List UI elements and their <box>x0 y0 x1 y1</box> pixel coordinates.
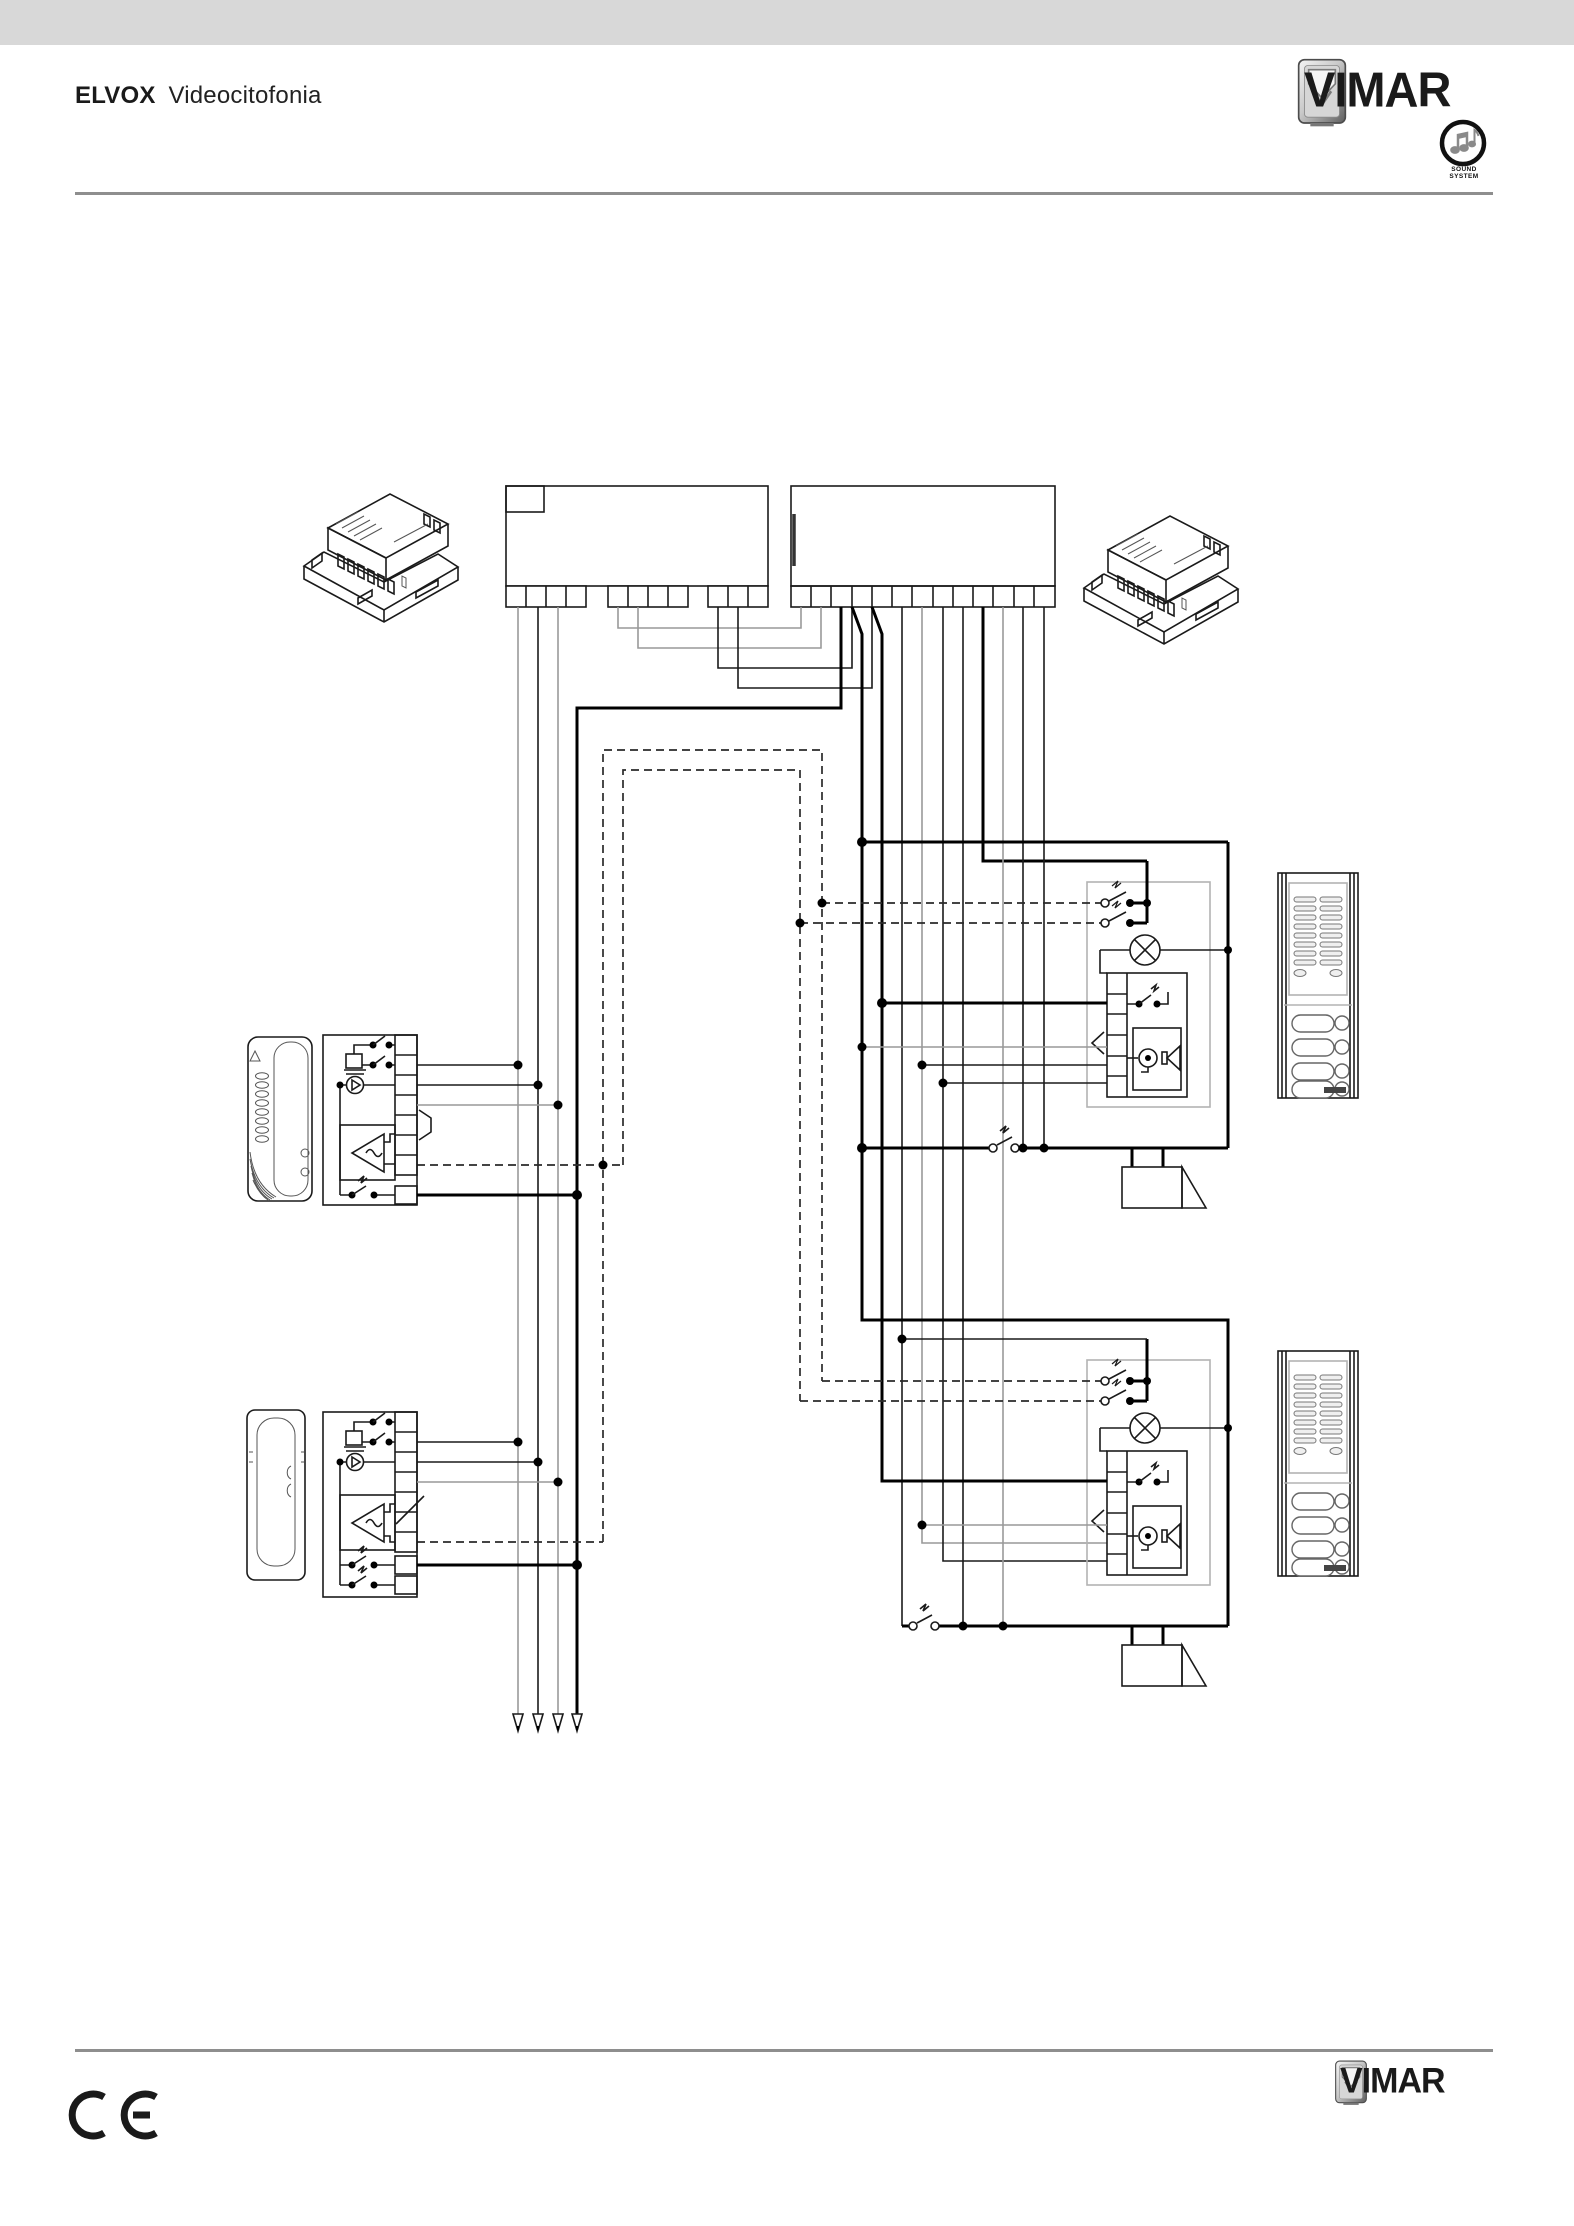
ce-mark-icon <box>72 2094 156 2136</box>
interphone-1-schematic <box>323 1035 431 1205</box>
terminal-unit-left <box>506 486 768 607</box>
entrance-panel-icon <box>1278 873 1358 1098</box>
receiver-icon <box>346 1074 364 1094</box>
interphone-1 <box>248 1035 577 1205</box>
vimar-wordmark: VIMAR <box>1340 2063 1445 2098</box>
door-station-1 <box>800 842 1358 1208</box>
dashed-wires <box>417 750 822 1542</box>
amplifier-icon <box>340 1125 395 1180</box>
handset-icon <box>247 1410 305 1580</box>
footer-rule <box>75 2049 1493 2052</box>
din-power-supply-left-icon <box>304 494 458 622</box>
interphone-2 <box>247 1410 577 1597</box>
buzzer-icon <box>344 1054 366 1070</box>
terminal-unit-right <box>791 486 1055 607</box>
door-station-2 <box>800 1320 1358 1686</box>
riser-arrows <box>513 1714 582 1731</box>
vimar-logo-footer: VIMAR <box>1334 2060 1445 2098</box>
din-power-supply-right-icon <box>1084 516 1238 644</box>
handset-icon <box>248 1037 312 1201</box>
interphone-2-schematic <box>323 1412 424 1597</box>
entrance-panel-icon <box>1278 1351 1358 1576</box>
bus-wires <box>518 607 1228 1714</box>
junction-dots <box>514 837 1049 1631</box>
wiring-diagram <box>0 0 1574 2226</box>
connector-wires <box>618 607 872 688</box>
document-page: { "page": { "background": "#ffffff", "to… <box>0 0 1574 2226</box>
